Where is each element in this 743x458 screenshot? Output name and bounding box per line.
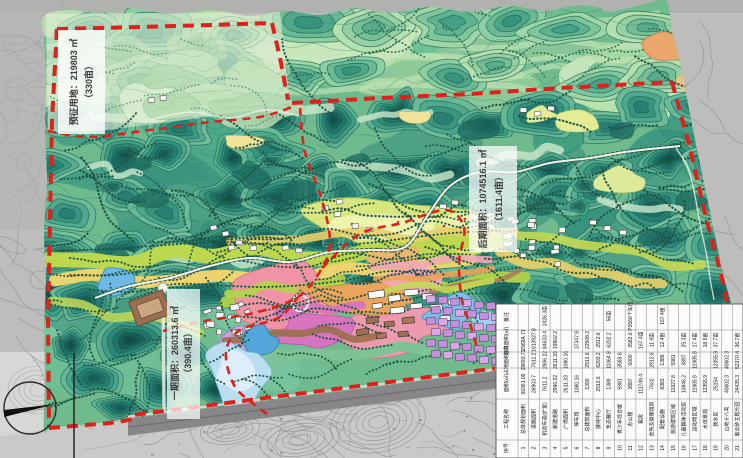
svg-text:2611.33: 2611.33 [564,375,570,393]
svg-text:56亩: 56亩 [606,311,613,322]
svg-text:11985.9: 11985.9 [692,351,698,369]
svg-text:2969A.71: 2969A.71 [521,329,527,351]
svg-text:8383: 8383 [660,378,666,389]
svg-text:3897: 3897 [628,378,634,389]
svg-text:14: 14 [660,445,666,451]
svg-text:预征用地：219803 ㎡: 预征用地：219803 ㎡ [68,39,79,126]
svg-text:工程名称: 工程名称 [503,409,510,429]
svg-text:2906.22: 2906.22 [542,351,548,369]
svg-text:16: 16 [682,445,688,451]
svg-text:1080.16: 1080.16 [574,375,580,393]
svg-text:13: 13 [649,445,655,451]
svg-text:后期面积：1074516.1 ㎡: 后期面积：1074516.1 ㎡ [477,149,488,248]
svg-text:1080.16: 1080.16 [564,351,570,369]
svg-text:紫云砂主题乐园: 紫云砂主题乐园 [734,401,741,436]
svg-text:11064.8: 11064.8 [607,351,613,369]
svg-text:18: 18 [703,445,709,451]
svg-text:客房: 客房 [638,414,645,424]
svg-text:40602.3: 40602.3 [724,351,730,369]
svg-text:12355.9: 12355.9 [703,375,709,393]
svg-text:办公楼: 办公楼 [627,411,634,426]
svg-text:11985.9: 11985.9 [692,375,698,393]
svg-text:37.7亩: 37.7亩 [713,333,720,348]
svg-text:25.3亩: 25.3亩 [681,333,688,348]
svg-text:会所及管理用房: 会所及管理用房 [648,401,655,436]
svg-text:面积(㎡): 面积(㎡) [503,374,510,393]
svg-text:跌水区: 跌水区 [713,411,720,426]
svg-text:2912.6: 2912.6 [585,352,591,368]
svg-text:生态餐厅: 生态餐厅 [606,409,613,429]
svg-text:5981: 5981 [617,378,623,389]
svg-text:3897: 3897 [682,354,688,365]
svg-text:总体规划面积: 总体规划面积 [520,404,527,434]
svg-text:6000: 6000 [628,354,634,365]
svg-text:备注: 备注 [503,312,510,322]
svg-text:7: 7 [585,446,591,449]
svg-text:广场面积: 广场面积 [563,409,570,429]
svg-text:12355.9: 12355.9 [714,351,720,369]
svg-text:21: 21 [735,445,741,451]
svg-text:167.4亩: 167.4亩 [638,331,645,349]
svg-text:1390: 1390 [585,378,591,389]
svg-text:2426.3亩: 2426.3亩 [541,306,548,326]
svg-text:12: 12 [639,445,645,451]
svg-text:8: 8 [596,446,602,449]
svg-text:道路面积: 道路面积 [531,409,538,429]
svg-text:29693.71: 29693.71 [521,349,527,370]
svg-text:水体景观: 水体景观 [702,409,709,429]
svg-text:6202.2: 6202.2 [607,332,613,348]
svg-text:6: 6 [574,446,580,449]
svg-text:接待中心: 接待中心 [595,409,602,429]
svg-text:旅游建筑区域: 旅游建筑区域 [670,404,677,434]
svg-text:4: 4 [553,446,559,449]
svg-text:1: 1 [521,446,527,449]
svg-text:19: 19 [714,445,720,451]
svg-text:11.9亩: 11.9亩 [648,333,655,347]
svg-text:26903.7: 26903.7 [532,375,538,393]
svg-text:17: 17 [692,445,698,451]
svg-text:5981: 5981 [671,354,677,365]
svg-text:11: 11 [628,445,634,450]
svg-text:18.5亩: 18.5亩 [702,333,709,348]
svg-text:37347.9: 37347.9 [574,331,580,349]
svg-text:1389: 1389 [660,354,666,365]
svg-text:2996.22: 2996.22 [553,375,559,393]
svg-text:3583.6: 3583.6 [628,332,634,348]
svg-text:25154: 25154 [714,377,720,391]
svg-text:10846.2: 10846.2 [682,375,688,393]
svg-text:7611.2: 7611.2 [542,376,548,391]
svg-text:84633.4: 84633.4 [542,331,548,349]
svg-text:20: 20 [724,445,730,451]
svg-text:7611.2: 7611.2 [532,352,538,367]
svg-text:2912.6: 2912.6 [649,352,655,368]
svg-text:一期面积：260313.6 ㎡: 一期面积：260313.6 ㎡ [169,306,180,400]
svg-text:3: 3 [542,446,548,449]
svg-text:19802.2: 19802.2 [553,331,559,349]
svg-text:2611.33: 2611.33 [553,351,559,369]
svg-text:24435.3: 24435.3 [735,375,741,393]
svg-text:17.4亩: 17.4亩 [691,333,698,348]
svg-text:52370.4: 52370.4 [735,351,741,369]
svg-text:10: 10 [617,445,623,451]
svg-text:22508.2: 22508.2 [585,331,591,349]
svg-text:（330亩）: （330亩） [83,61,94,103]
svg-text:7602: 7602 [649,378,655,389]
svg-text:2912.6: 2912.6 [596,376,602,392]
svg-text:2: 2 [532,446,538,449]
svg-text:机动车道(扩宽): 机动车道(扩宽) [541,402,548,436]
svg-text:（390.4亩）: （390.4亩） [182,328,193,378]
svg-text:配套设施: 配套设施 [659,409,666,429]
svg-text:1613927.8: 1613927.8 [532,328,538,352]
svg-text:111749.4: 111749.4 [639,374,645,394]
svg-text:儿童趣味活动区: 儿童趣味活动区 [681,401,688,436]
svg-text:停车场: 停车场 [573,411,580,426]
svg-text:5: 5 [564,446,570,449]
svg-text:序号: 序号 [503,443,510,453]
svg-text:167.4亩: 167.4亩 [659,307,666,325]
svg-text:36.7亩: 36.7亩 [734,333,741,348]
svg-text:1389: 1389 [607,378,613,389]
svg-text:青少年综合楼: 青少年综合楼 [616,404,623,434]
svg-text:3583.6: 3583.6 [617,352,623,368]
svg-text:占地面积(㎡): 占地面积(㎡) [503,346,510,375]
svg-text:6203.2: 6203.2 [596,352,602,368]
svg-text:（1611.4亩）: （1611.4亩） [493,172,504,226]
svg-text:总建筑面积: 总建筑面积 [584,406,591,431]
svg-text:P2666个车位: P2666个车位 [627,301,634,330]
svg-text:运动场区域: 运动场区域 [691,406,698,431]
svg-text:山地十八弯: 山地十八弯 [723,406,730,431]
svg-text:12.4亩: 12.4亩 [659,333,666,348]
svg-text:15: 15 [671,445,677,451]
svg-text:60361.09: 60361.09 [521,373,527,394]
svg-text:40602.3: 40602.3 [724,375,730,393]
svg-text:新建道路: 新建道路 [552,409,559,429]
svg-text:11927.8: 11927.8 [671,375,677,393]
svg-text:2912.6: 2912.6 [596,332,602,348]
svg-text:9: 9 [607,446,613,449]
